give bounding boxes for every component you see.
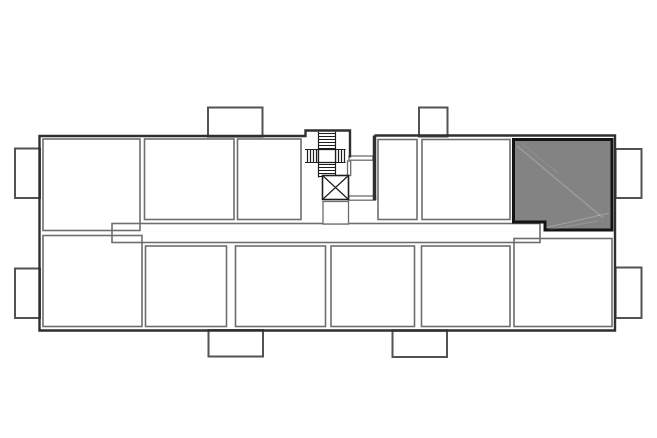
room-bottom-3 (236, 246, 326, 327)
floor-plan-canvas (0, 0, 657, 438)
stair-treads-top (319, 134, 336, 149)
balcony-top-right (419, 108, 448, 137)
room-bottom-5 (422, 246, 511, 327)
stair-core (305, 132, 376, 225)
stairs-icon (305, 132, 346, 178)
room-bottom-1 (43, 236, 142, 327)
balcony-left-lower (15, 269, 40, 319)
room-bottom-4 (331, 246, 415, 327)
balcony-right-upper (616, 149, 642, 198)
floor-plan-drawing (0, 0, 657, 438)
highlighted-unit[interactable] (514, 140, 613, 231)
core-wall-lower (349, 196, 376, 200)
stair-landing (319, 150, 336, 163)
room-top-1 (43, 139, 140, 231)
room-bottom-6 (514, 239, 612, 327)
stair-treads-bottom (319, 165, 336, 177)
room-top-2 (145, 139, 235, 220)
balcony-bottom-left (209, 330, 264, 357)
balcony-top-left (208, 108, 263, 137)
corridor (112, 224, 540, 243)
core-wall-upper (349, 156, 373, 160)
rooms-top-row (43, 139, 510, 231)
elevator-icon (323, 176, 349, 200)
balcony-left-upper (15, 149, 40, 199)
balcony-bottom-right (393, 331, 448, 358)
room-top-3 (238, 139, 302, 220)
core-wall-vertical (348, 161, 351, 176)
rooms-bottom-row (43, 236, 612, 327)
room-top-5 (422, 140, 510, 220)
stair-treads-left (305, 150, 319, 163)
balcony-right-lower (616, 268, 642, 319)
core-shaft (323, 202, 349, 225)
stair-treads-right (336, 150, 346, 163)
room-bottom-2 (146, 246, 227, 327)
room-top-4 (378, 140, 417, 220)
